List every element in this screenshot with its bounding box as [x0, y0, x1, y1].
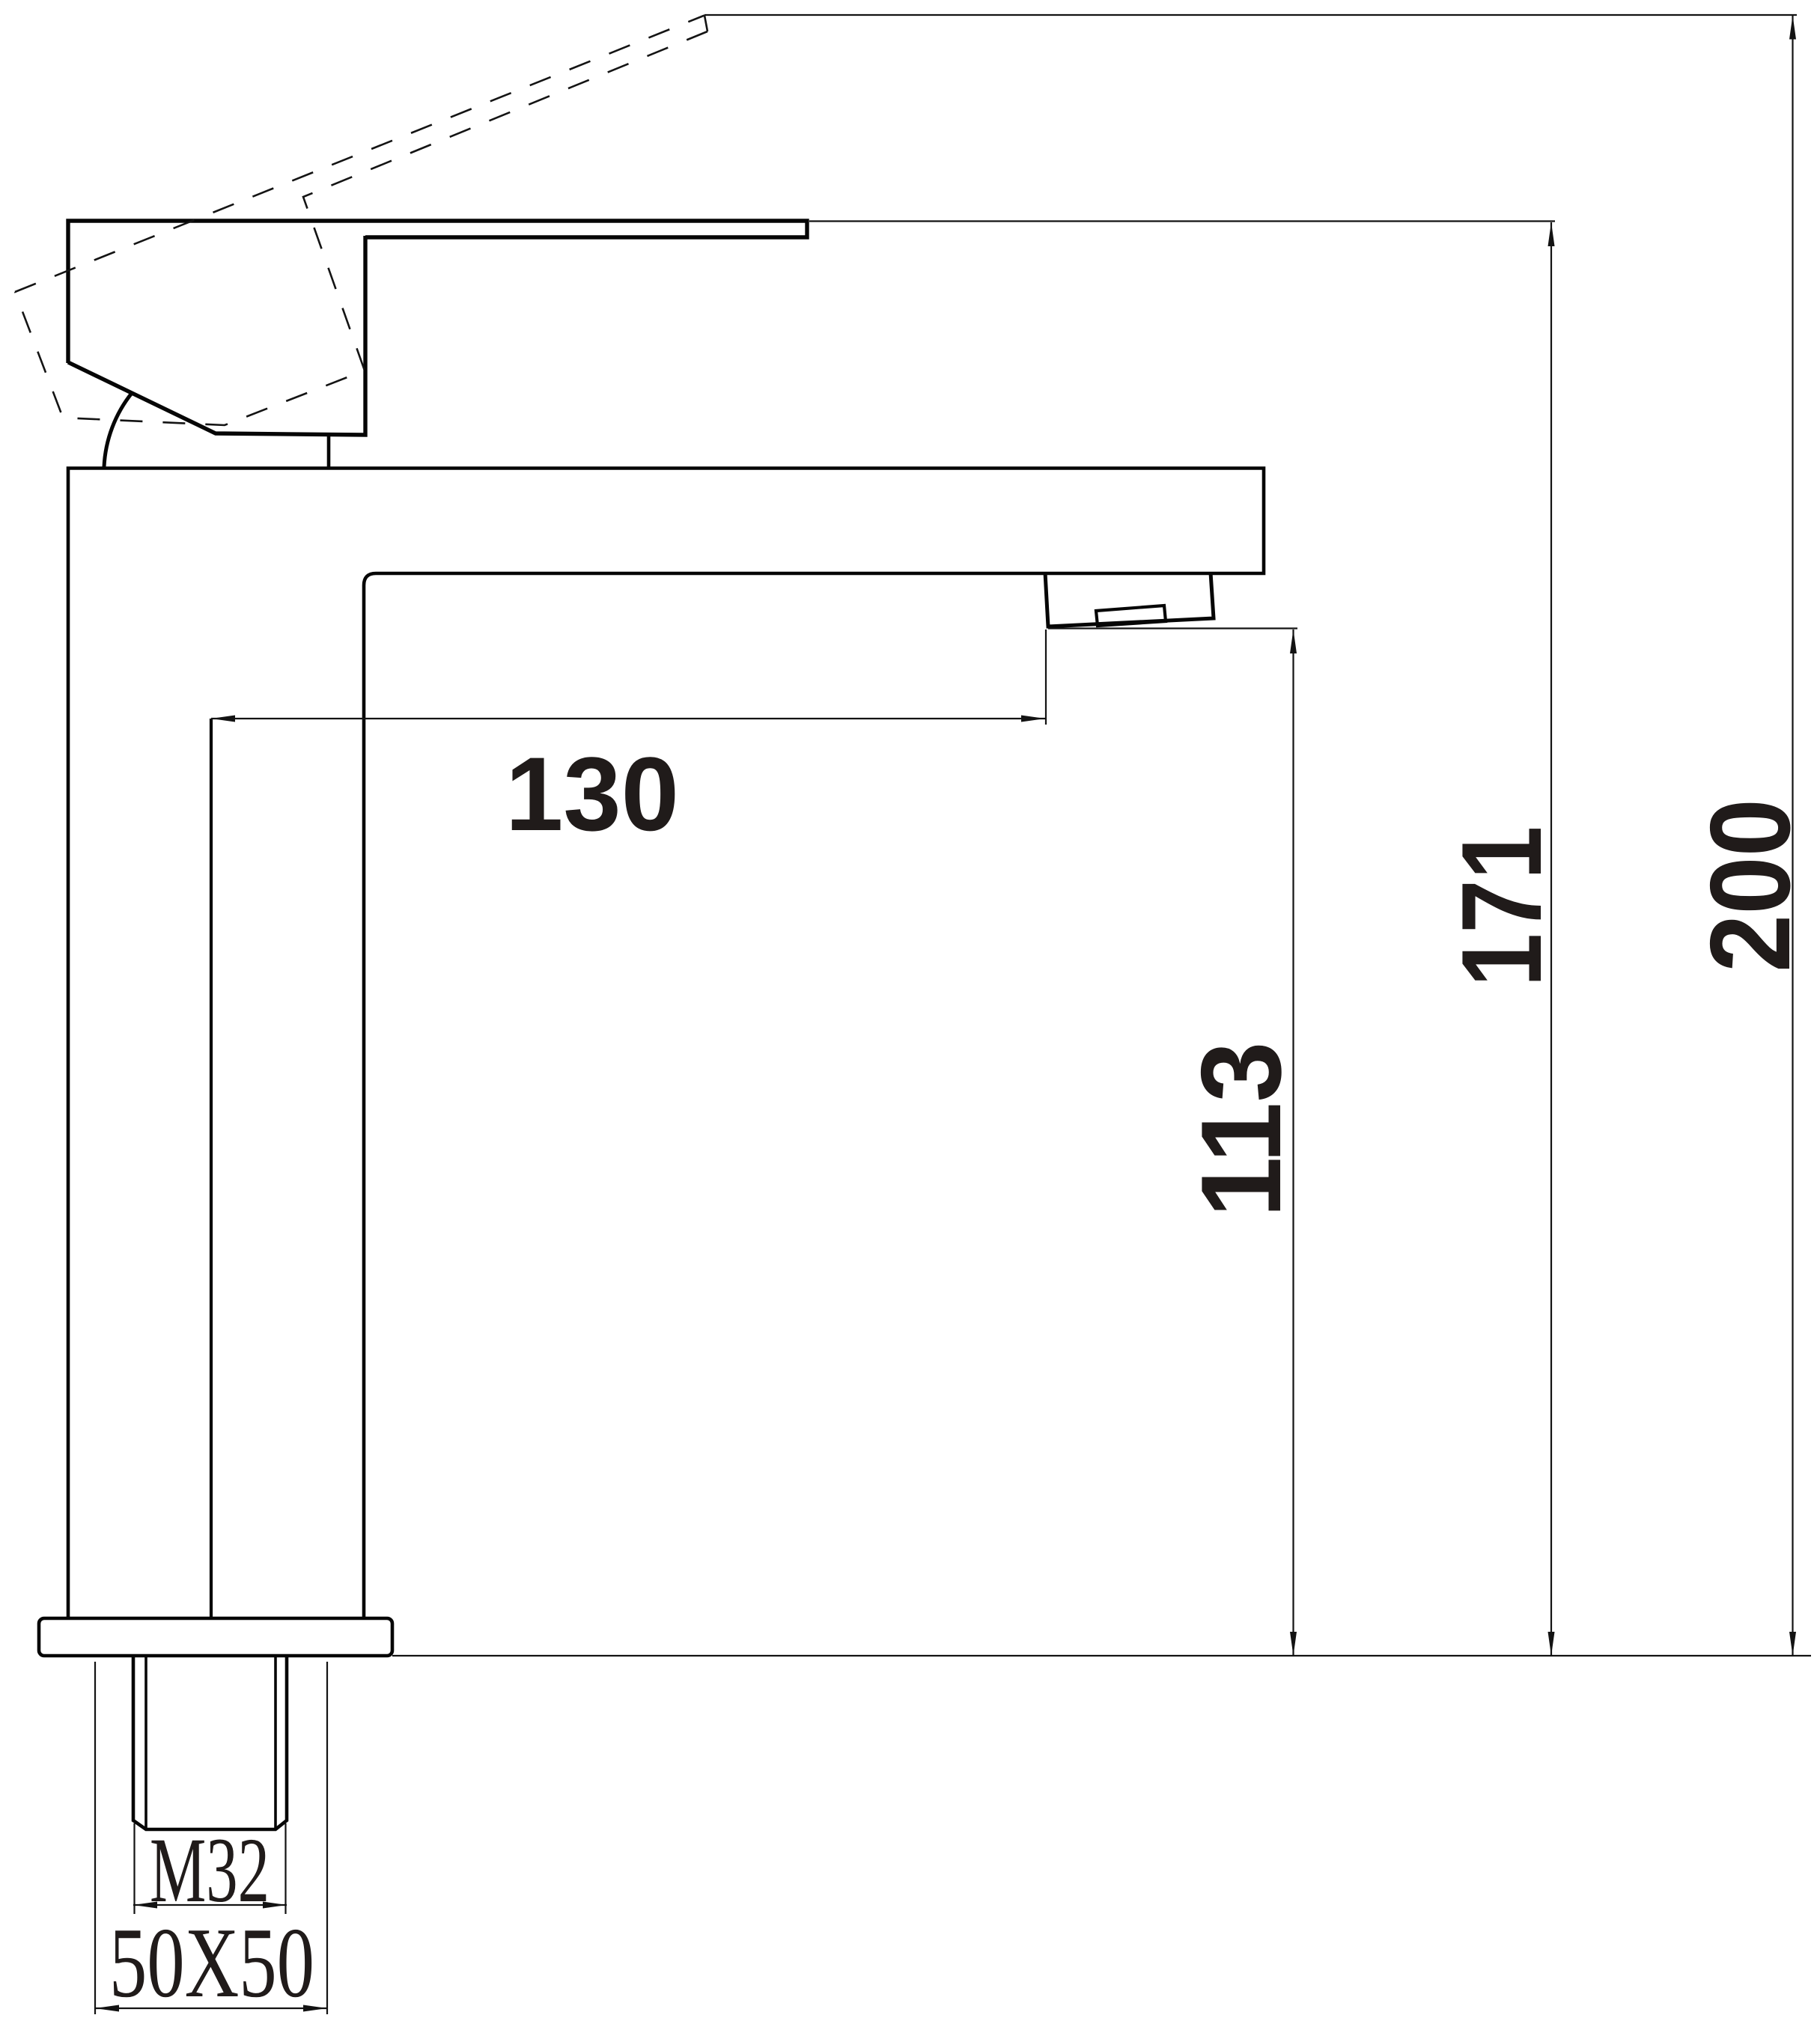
- svg-text:171: 171: [1438, 826, 1565, 987]
- svg-text:113: 113: [1178, 1042, 1305, 1218]
- svg-text:50X50: 50X50: [109, 1907, 314, 2018]
- svg-text:M32: M32: [150, 1819, 270, 1921]
- svg-text:130: 130: [505, 735, 679, 853]
- svg-text:200: 200: [1687, 799, 1814, 972]
